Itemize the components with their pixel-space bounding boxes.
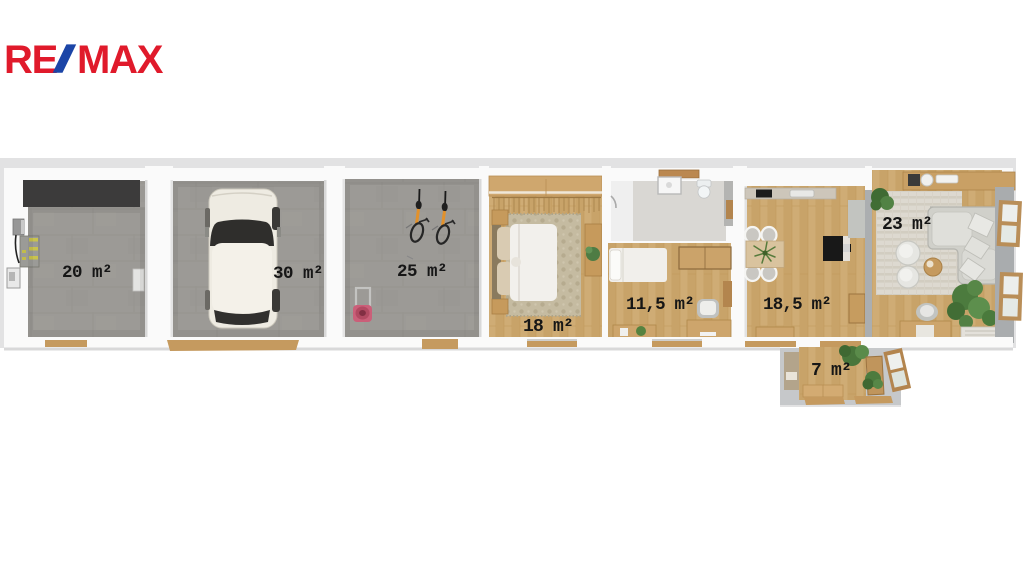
svg-text:23 m²: 23 m² <box>882 215 932 235</box>
svg-text:RE: RE <box>4 38 58 82</box>
svg-text:MAX: MAX <box>77 38 164 82</box>
svg-text:11,5 m²: 11,5 m² <box>626 295 694 315</box>
svg-text:25 m²: 25 m² <box>397 262 447 282</box>
svg-text:30 m²: 30 m² <box>273 264 323 284</box>
svg-text:18 m²: 18 m² <box>523 317 573 337</box>
svg-text:7 m²: 7 m² <box>811 361 851 381</box>
svg-text:18,5 m²: 18,5 m² <box>763 295 831 315</box>
svg-text:20 m²: 20 m² <box>62 263 112 283</box>
